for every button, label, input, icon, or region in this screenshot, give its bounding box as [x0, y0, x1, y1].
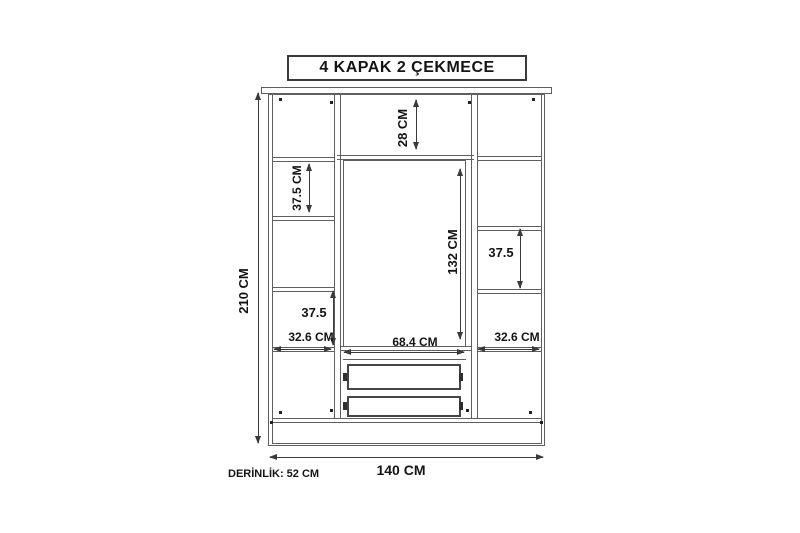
dim-label-left-width: 32.6 CM: [282, 330, 340, 343]
dim-arrow-left-width: [274, 349, 331, 350]
corner-dot: [466, 409, 469, 412]
title-box: 4 KAPAK 2 ÇEKMECE: [287, 55, 527, 81]
dim-arrow-right-width: [478, 349, 539, 350]
wardrobe-inner-left-line: [272, 94, 273, 443]
drawer-1: [347, 364, 461, 390]
dim-label-total-height: 210 CM: [236, 261, 250, 321]
right-shelf-1: [477, 156, 541, 161]
left-shelf-3: [272, 287, 334, 292]
dim-arrow-center-door: [460, 169, 461, 339]
dim-arrow-top-shelf: [416, 100, 417, 149]
left-partition-line-b: [340, 94, 341, 419]
corner-dot: [279, 98, 282, 101]
dim-label-center-door: 132 CM: [445, 225, 459, 279]
drawer-compartment-top-line: [343, 359, 466, 360]
dim-arrow-center-width: [344, 352, 464, 353]
drawer-slide-mark: [459, 402, 463, 410]
corner-dot: [540, 421, 543, 424]
drawer-slide-mark: [459, 373, 463, 381]
wardrobe-inner-right-line: [541, 94, 542, 443]
left-partition-line-a: [334, 94, 335, 419]
diagram-title: 4 KAPAK 2 ÇEKMECE: [319, 59, 494, 77]
dim-label-top-shelf: 28 CM: [395, 103, 409, 153]
corner-dot: [279, 411, 282, 414]
dim-label-right-width: 32.6 CM: [488, 330, 546, 343]
diagram-canvas: 4 KAPAK 2 ÇEKMECE: [0, 0, 800, 533]
drawer-slide-mark: [343, 373, 347, 381]
corner-dot: [532, 98, 535, 101]
dim-arrow-total-height: [258, 93, 259, 443]
dim-arrow-left-upper: [309, 164, 310, 212]
dim-label-left-upper: 37.5 CM: [290, 158, 304, 218]
dim-label-right-shelf: 37.5: [479, 246, 523, 259]
plinth-top-line: [272, 418, 541, 423]
drawer-2: [347, 396, 461, 417]
right-shelf-3: [477, 289, 541, 294]
corner-dot: [468, 101, 471, 104]
corner-dot: [330, 101, 333, 104]
right-partition-line-b: [477, 94, 478, 419]
corner-dot: [270, 421, 273, 424]
dim-label-left-lower: 37.5: [292, 306, 336, 319]
dim-arrow-total-width: [270, 457, 543, 458]
dim-label-center-width: 68.4 CM: [386, 335, 444, 348]
crown-molding: [261, 87, 552, 94]
depth-note: DERİNLİK: 52 CM: [228, 468, 319, 480]
drawer-slide-mark: [343, 402, 347, 410]
wardrobe-inner-bottom-line: [272, 443, 542, 444]
dim-label-total-width: 140 CM: [361, 462, 441, 477]
right-shelf-2: [477, 226, 541, 231]
corner-dot: [529, 411, 532, 414]
right-partition-line-a: [471, 94, 472, 419]
corner-dot: [330, 409, 333, 412]
